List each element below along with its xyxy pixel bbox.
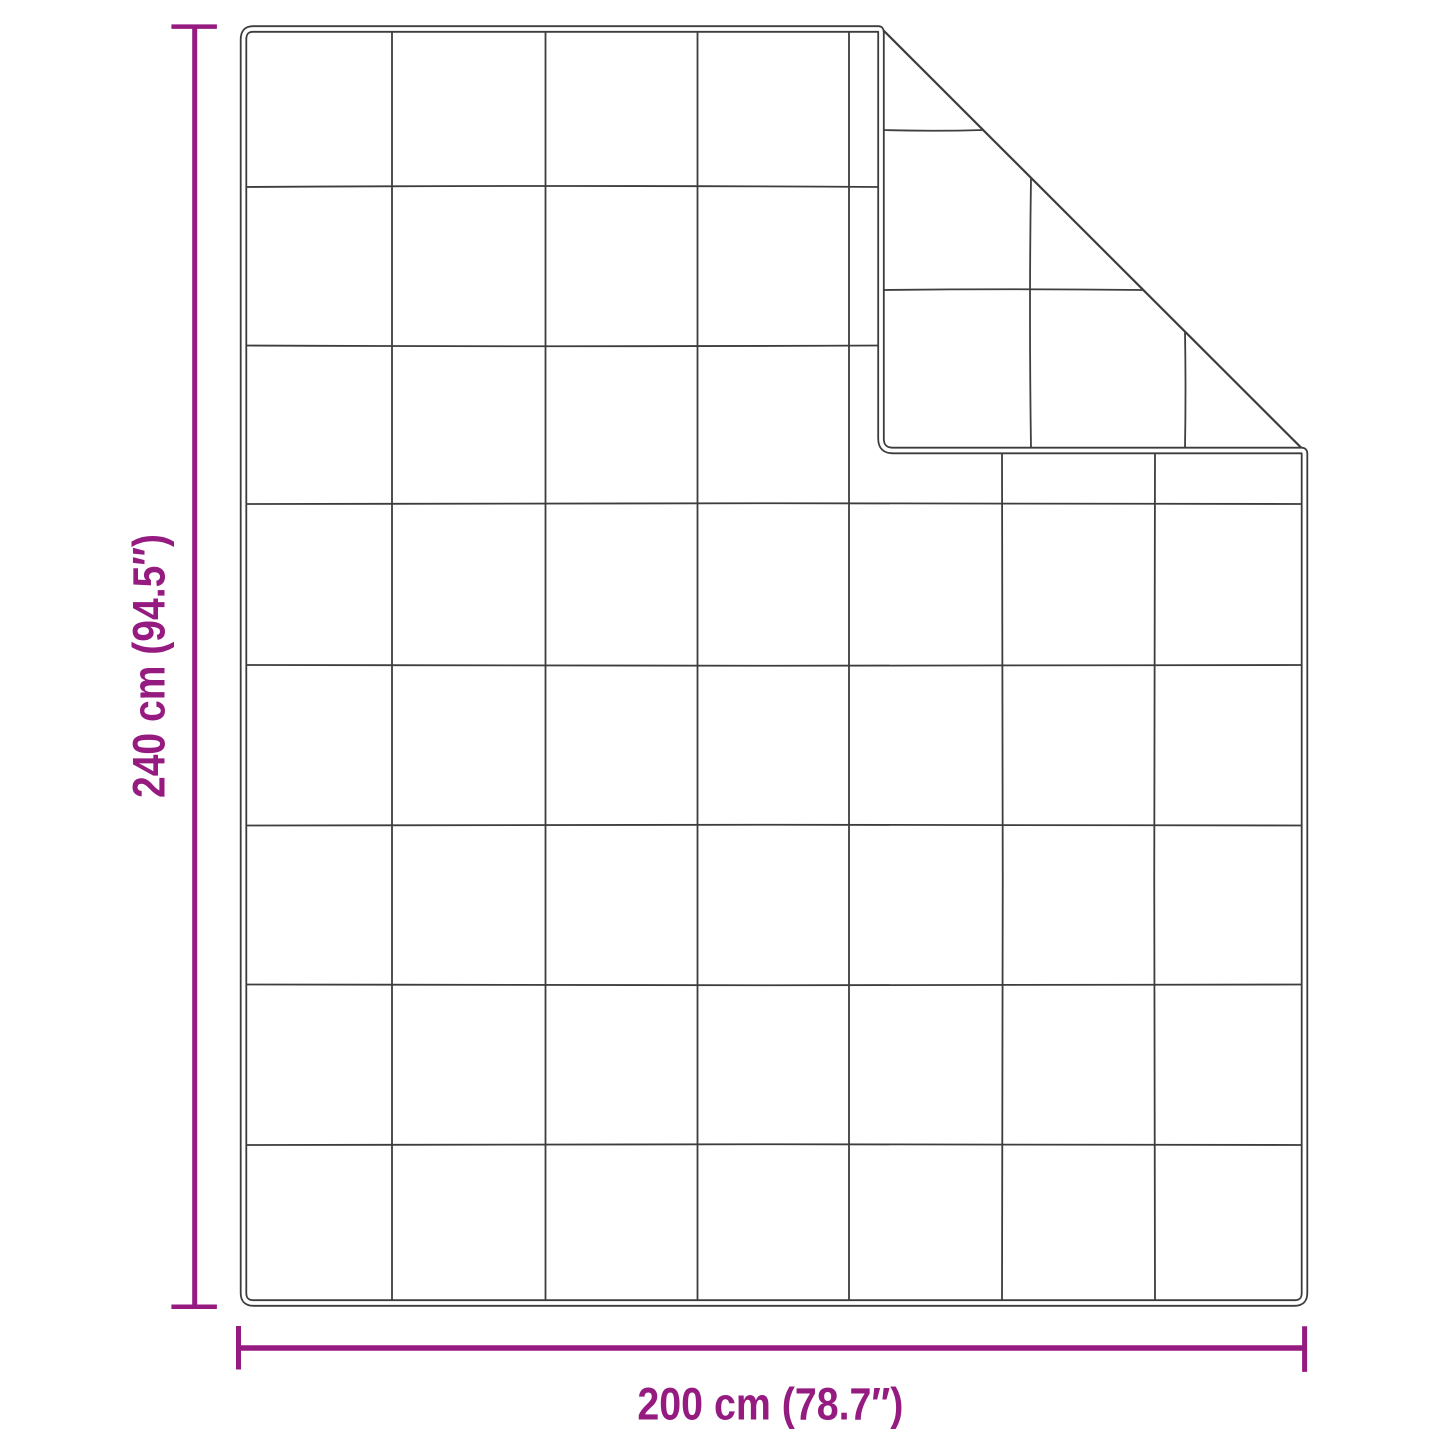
svg-text:200 cm (78.7″): 200 cm (78.7″): [637, 1379, 903, 1430]
svg-text:240 cm (94.5″): 240 cm (94.5″): [124, 534, 175, 798]
